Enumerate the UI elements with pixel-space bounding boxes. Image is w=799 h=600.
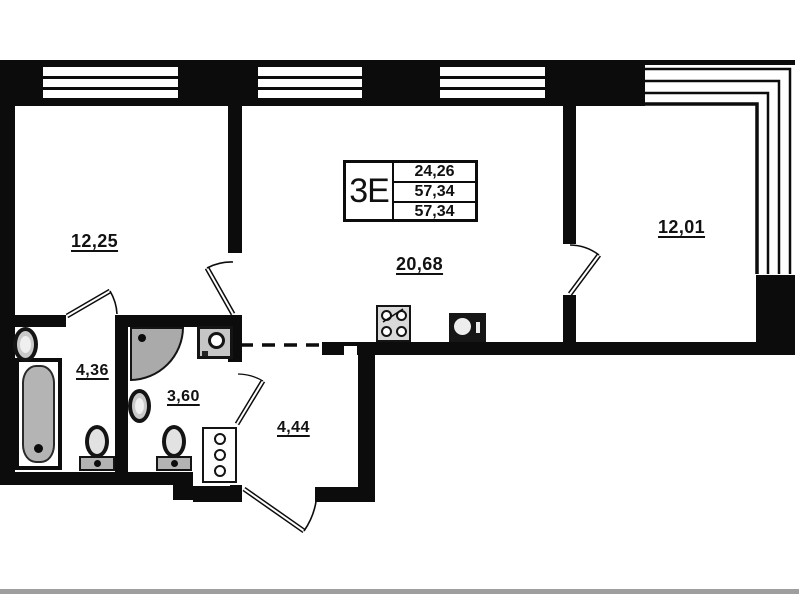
room-area-label-bedroom-left: 12,25 (71, 231, 118, 252)
floor-plan: 3Е 24,26 57,34 57,34 12,25 20,68 12,01 4… (0, 0, 799, 600)
stove-detail-line (383, 309, 403, 322)
door-icon (570, 245, 599, 294)
room-area-label-hallway: 4,44 (277, 419, 310, 437)
room-area-label-bathroom: 4,36 (76, 362, 109, 380)
room-area-label-bedroom-right: 12,01 (658, 217, 705, 238)
room-area-label-kitchen-living: 20,68 (396, 254, 443, 275)
unit-info-box: 3Е 24,26 57,34 57,34 (343, 160, 478, 222)
door-icon (237, 374, 263, 424)
entrance-door-icon (244, 489, 317, 531)
total-area-balcony-value: 57,34 (394, 201, 475, 221)
total-area-value: 57,34 (394, 181, 475, 201)
room-area-label-shower-room: 3,60 (167, 388, 200, 406)
living-area-value: 24,26 (394, 163, 475, 181)
plan-linework (0, 0, 799, 600)
corner-window (645, 69, 790, 274)
door-icon (207, 262, 233, 314)
door-icon (67, 291, 117, 316)
unit-type-label: 3Е (346, 163, 394, 219)
